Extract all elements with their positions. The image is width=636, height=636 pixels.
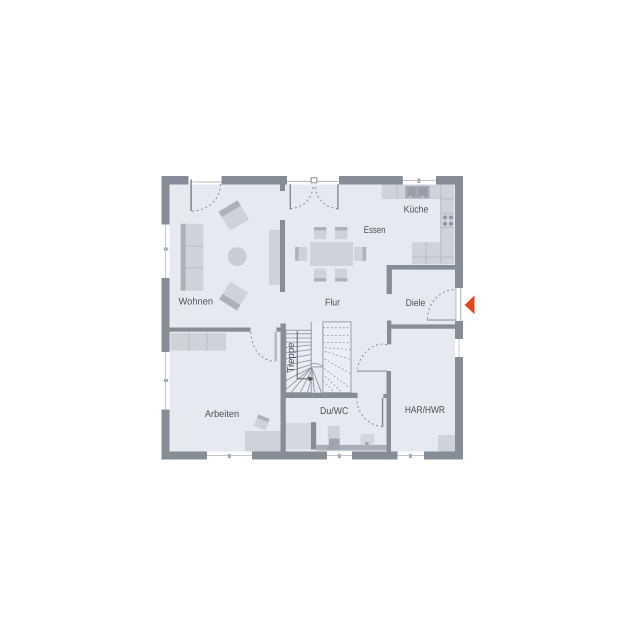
svg-text:Wohnen: Wohnen [179,297,214,308]
svg-text:Treppe: Treppe [286,342,297,373]
svg-text:Diele: Diele [406,298,426,309]
svg-text:Arbeiten: Arbeiten [205,409,239,420]
svg-text:Flur: Flur [325,297,341,308]
svg-text:HAR/HWR: HAR/HWR [405,405,445,416]
svg-text:Küche: Küche [404,204,429,215]
svg-text:Essen: Essen [364,225,386,236]
svg-text:Du/WC: Du/WC [320,406,348,417]
